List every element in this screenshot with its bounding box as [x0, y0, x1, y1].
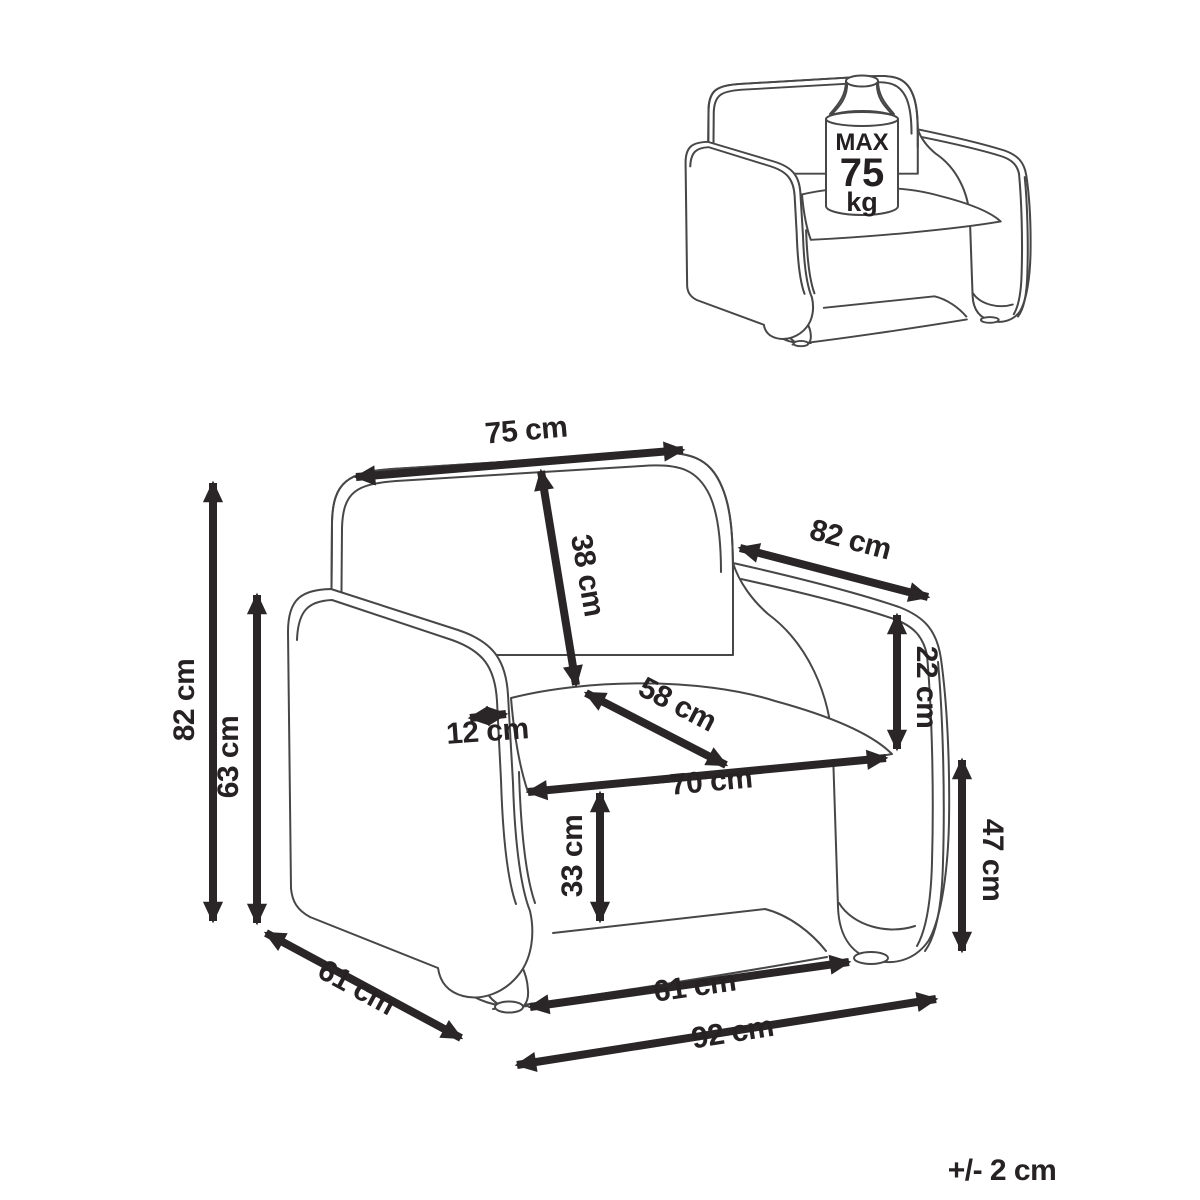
dim-label-armrest-front-height: 47 cm — [976, 819, 1009, 902]
dim-label-seat-width: 70 cm — [668, 761, 753, 801]
dimension-diagram: MAX 75 kg 75 cm 38 cm 82 cm 22 cm 58 cm — [0, 0, 1200, 1200]
weight-unit: kg — [846, 187, 878, 217]
dim-overall-height: 82 cm — [168, 483, 213, 921]
dim-label-armrest-to-seat-height: 22 cm — [910, 646, 943, 729]
dim-label-side-depth: 61 cm — [312, 953, 400, 1021]
dim-seat-height: 33 cm — [556, 793, 600, 921]
dim-label-backrest-top-width: 75 cm — [484, 411, 569, 451]
dim-armrest-height: 63 cm — [212, 595, 257, 923]
dim-label-armrest-thickness: 12 cm — [445, 712, 530, 751]
dim-overall-width: 92 cm — [517, 999, 936, 1065]
dim-armrest-thickness: 12 cm — [445, 712, 530, 751]
tolerance-note: +/- 2 cm — [948, 1154, 1057, 1187]
dim-label-armrest-height: 63 cm — [212, 716, 245, 799]
diagram-canvas: MAX 75 kg 75 cm 38 cm 82 cm 22 cm 58 cm — [0, 0, 1200, 1200]
dim-label-overall-height: 82 cm — [168, 659, 201, 742]
dim-label-front-base-width: 61 cm — [651, 965, 737, 1009]
dim-label-overall-width: 92 cm — [689, 1010, 776, 1056]
dim-armrest-front-height: 47 cm — [962, 760, 1009, 951]
dim-front-base-width: 61 cm — [530, 962, 849, 1009]
dim-label-seat-height: 33 cm — [556, 815, 589, 898]
dim-label-top-depth: 82 cm — [806, 513, 894, 566]
